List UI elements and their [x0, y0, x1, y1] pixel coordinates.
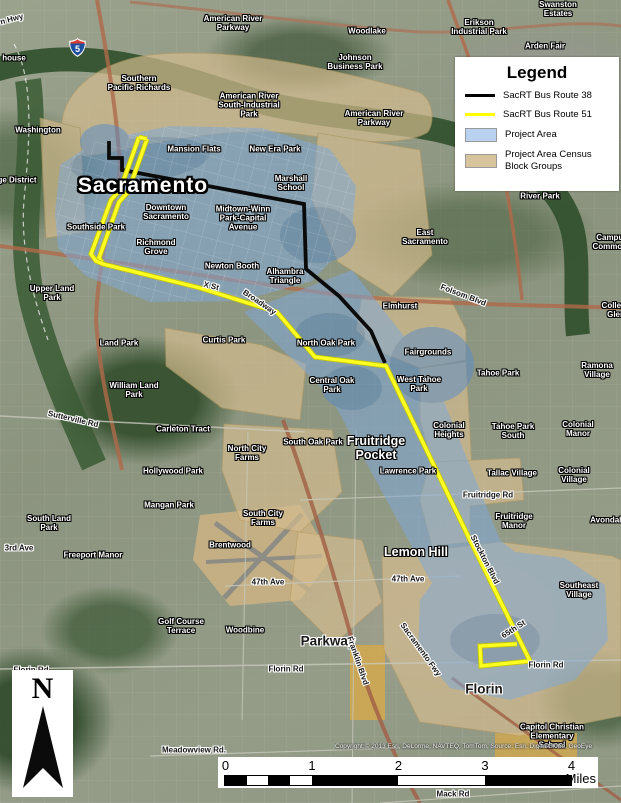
interstate-5-number: 5 — [69, 44, 86, 54]
map-screenshot: 5 n HwyhouseAmerican River ParkwayWoodla… — [0, 0, 621, 803]
scale-bar-unit: Miles — [566, 771, 596, 786]
basemap-attribution: Copyright:© 2013 Esri, DeLorme, NAVTEQ, … — [335, 743, 619, 750]
north-arrow-n: N — [12, 674, 73, 704]
interstate-5-shield: 5 — [69, 38, 86, 57]
scale-segment — [290, 776, 312, 785]
legend-item-route-38: SacRT Bus Route 38 — [465, 90, 619, 102]
scale-segment — [312, 776, 399, 785]
scale-segment — [247, 776, 269, 785]
scale-segment — [398, 776, 485, 785]
legend-title: Legend — [455, 63, 619, 83]
scale-segment — [225, 776, 247, 785]
scale-tick: 2 — [395, 758, 402, 773]
scale-tick: 1 — [308, 758, 315, 773]
census-blocks-swatch — [465, 154, 497, 168]
scale-bar-bar — [224, 775, 572, 786]
scale-segment — [268, 776, 290, 785]
sacrt-bus-route-51 — [139, 137, 147, 139]
scale-bar: 01234 Miles — [218, 757, 598, 788]
north-arrow-icon — [17, 704, 69, 792]
scale-tick: 3 — [481, 758, 488, 773]
route-38-line-swatch — [465, 94, 495, 97]
route-51-line-swatch — [465, 113, 495, 116]
legend-item-project-area: Project Area — [465, 128, 619, 142]
project-area-swatch — [465, 128, 497, 142]
scale-tick: 0 — [222, 758, 229, 773]
legend-item-route-51: SacRT Bus Route 51 — [465, 109, 619, 121]
scale-segment — [485, 776, 572, 785]
north-arrow: N — [12, 670, 73, 797]
legend: Legend SacRT Bus Route 38 SacRT Bus Rout… — [455, 57, 619, 191]
legend-item-census-blocks: Project Area Census Block Groups — [465, 149, 619, 173]
downtown-street-grid — [55, 126, 356, 302]
